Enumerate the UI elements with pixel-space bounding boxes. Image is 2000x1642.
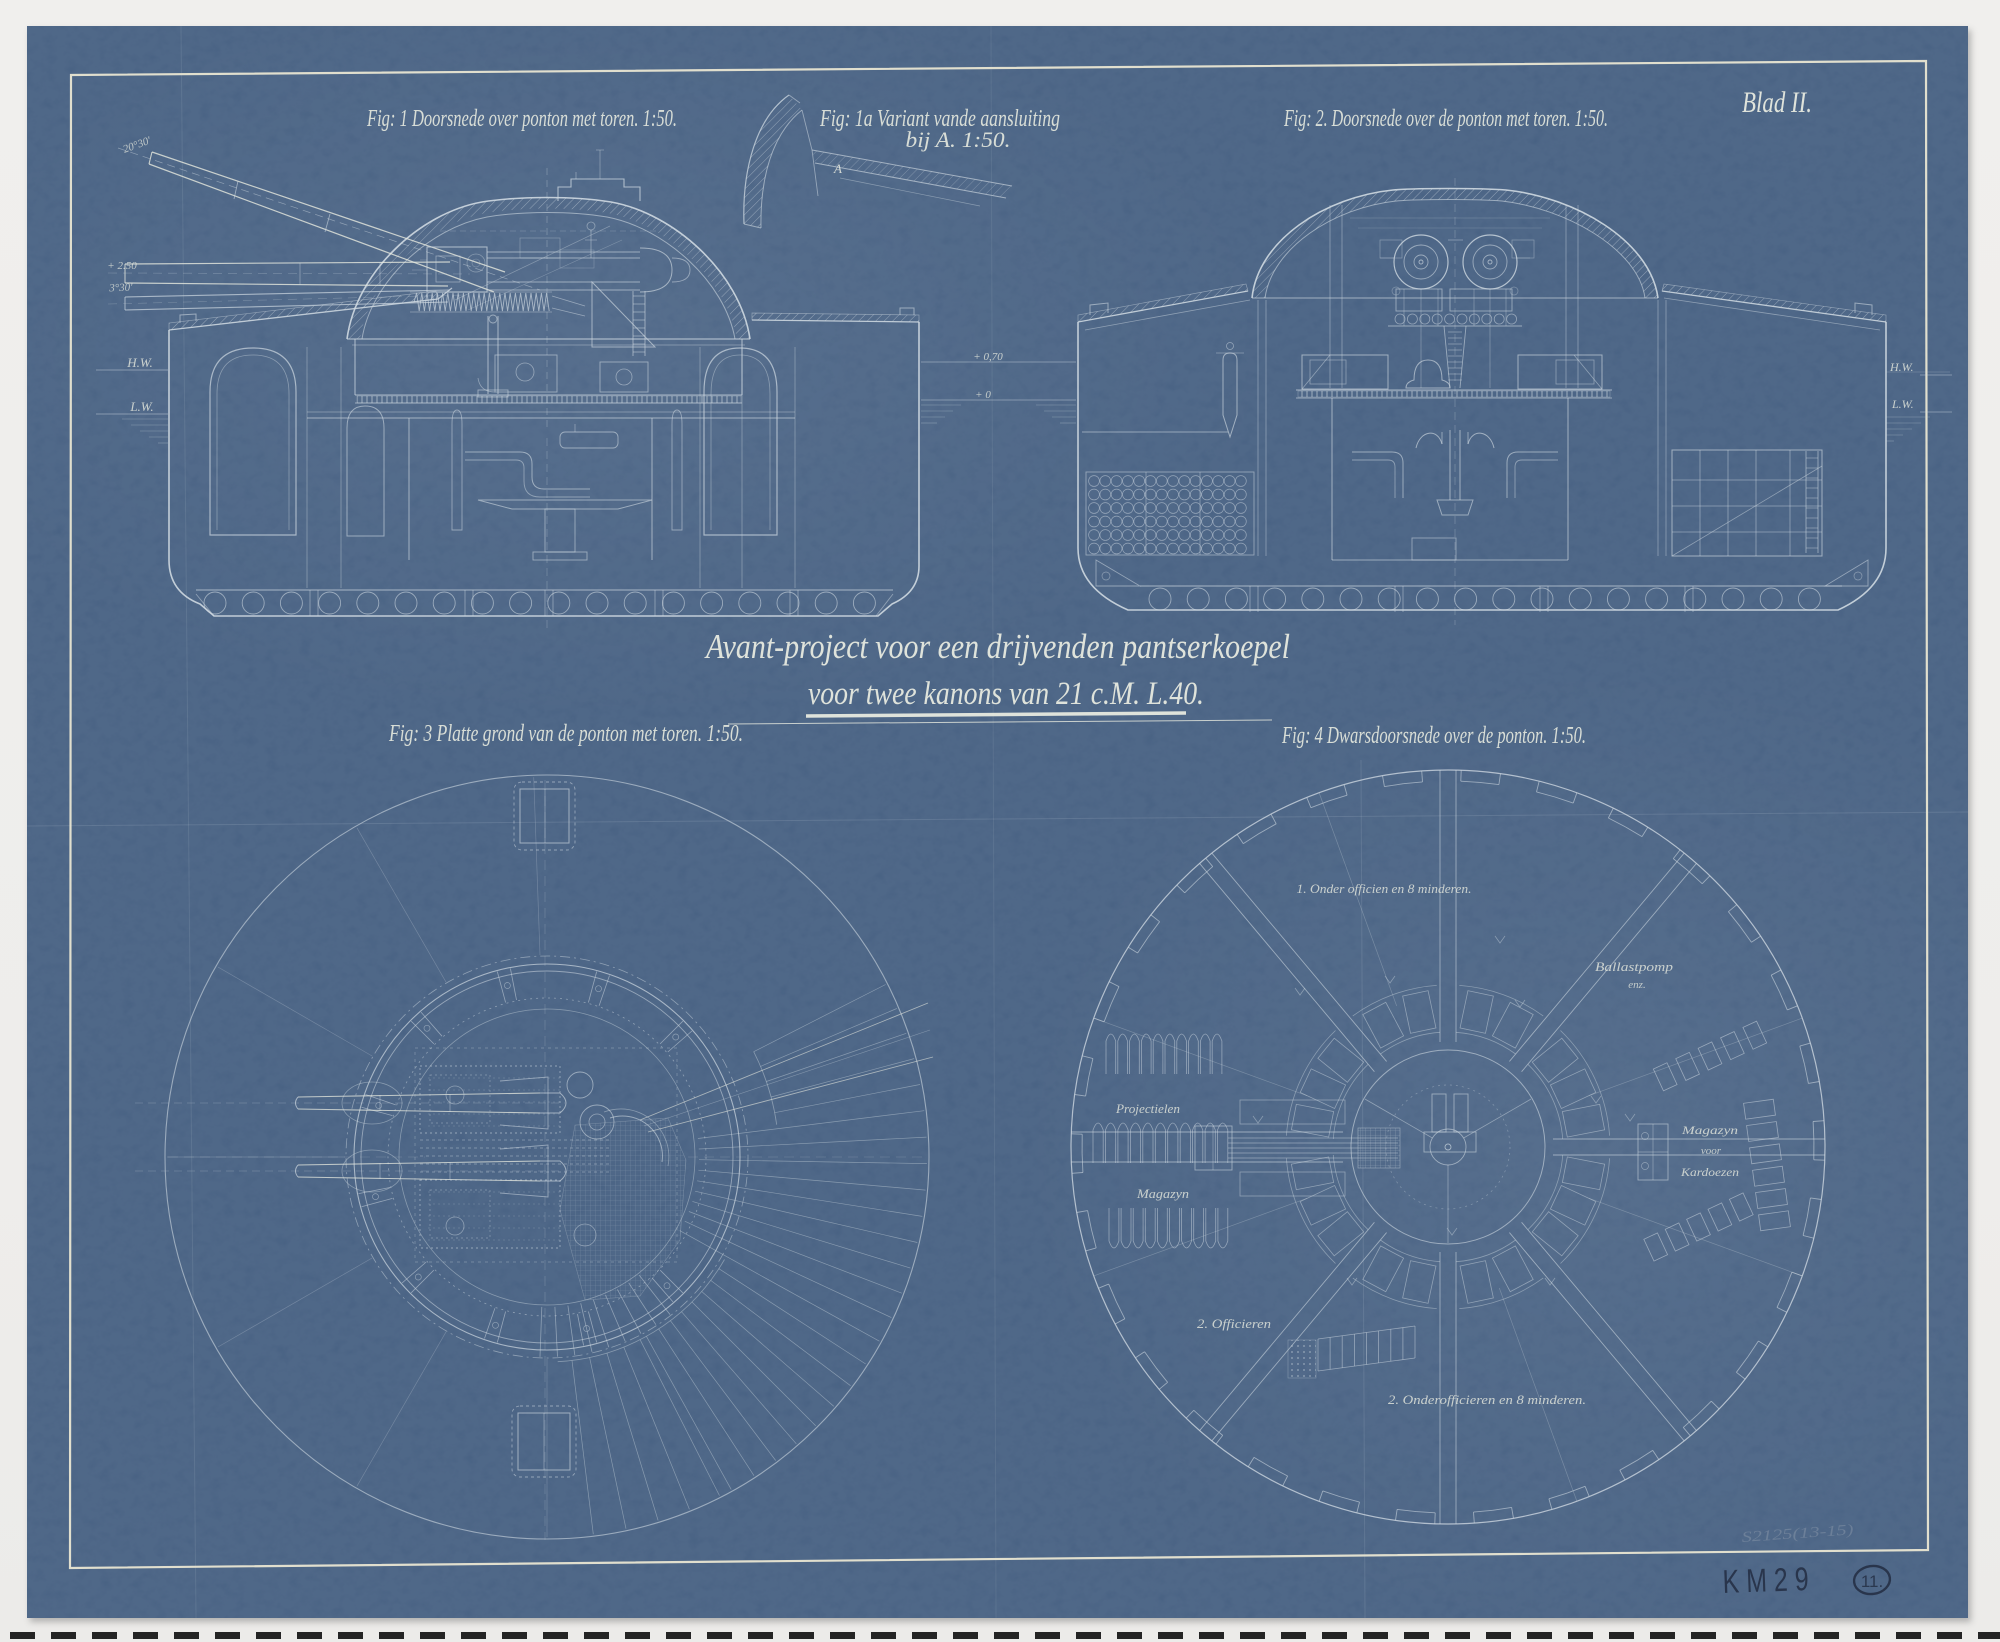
svg-text:1. Onder officien en 8 mindere: 1. Onder officien en 8 minderen. (1297, 881, 1472, 896)
svg-text:2. Onderofficieren en 8 minder: 2. Onderofficieren en 8 minderen. (1388, 1392, 1586, 1407)
svg-text:Ballastpomp: Ballastpomp (1595, 959, 1674, 974)
svg-text:voor twee kanons van 21 c.M. L: voor twee kanons van 21 c.M. L.40. (808, 676, 1204, 712)
svg-text:Projectielen: Projectielen (1115, 1101, 1180, 1116)
svg-text:Fig: 3 Platte grond van de pon: Fig: 3 Platte grond van de ponton met to… (388, 721, 743, 747)
svg-text:2. Officieren: 2. Officieren (1197, 1316, 1271, 1331)
svg-text:Kardoezen: Kardoezen (1680, 1165, 1739, 1179)
svg-text:11.: 11. (1861, 1572, 1883, 1591)
svg-text:Avant-project voor een drijven: Avant-project voor een drijvenden pantse… (704, 627, 1290, 666)
svg-text:A: A (833, 161, 842, 176)
svg-text:H.W.: H.W. (126, 355, 153, 370)
svg-text:Magazyn: Magazyn (1681, 1123, 1738, 1137)
svg-text:+ 2.50: + 2.50 (107, 260, 137, 272)
svg-text:L.W.: L.W. (129, 399, 153, 414)
svg-text:3°30': 3°30' (108, 282, 133, 295)
svg-text:+ 0,70: + 0,70 (973, 351, 1003, 363)
svg-text:K M 2 9: K M 2 9 (1722, 1560, 1809, 1600)
svg-text:Magazyn: Magazyn (1136, 1186, 1189, 1201)
svg-text:L.W.: L.W. (1891, 397, 1914, 411)
svg-text:Fig: 2. Doorsnede over de pont: Fig: 2. Doorsnede over de ponton met tor… (1283, 106, 1608, 132)
svg-text:+ 0: + 0 (975, 389, 991, 401)
svg-text:voor: voor (1701, 1145, 1722, 1157)
svg-text:Fig: 4 Dwarsdoorsnede over de: Fig: 4 Dwarsdoorsnede over de ponton. 1:… (1281, 723, 1586, 749)
svg-text:Blad II.: Blad II. (1742, 86, 1812, 119)
svg-text:Fig: 1 Doorsnede over ponton m: Fig: 1 Doorsnede over ponton met toren. … (366, 106, 677, 132)
svg-text:enz.: enz. (1628, 979, 1645, 991)
svg-text:bij A. 1:50.: bij A. 1:50. (906, 127, 1011, 152)
